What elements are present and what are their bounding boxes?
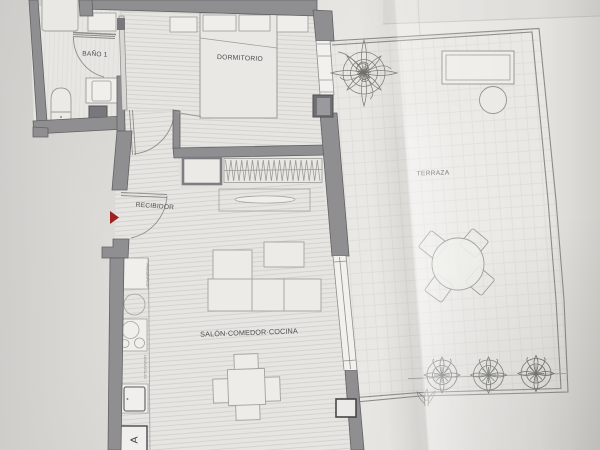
- svg-text:LAVAVAJILLAS: LAVAVAJILLAS: [143, 355, 147, 379]
- svg-text:A: A: [129, 436, 141, 443]
- svg-text:FRIGORIFICO: FRIGORIFICO: [145, 263, 149, 286]
